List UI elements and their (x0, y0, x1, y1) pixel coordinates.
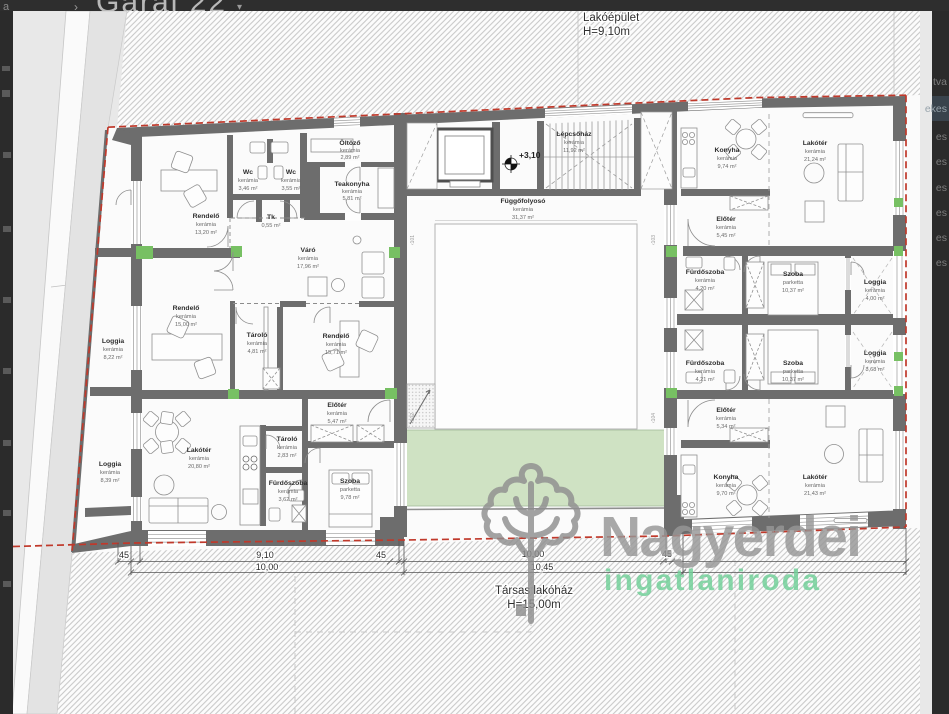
svg-text:3,46 m²: 3,46 m² (239, 186, 258, 192)
svg-text:kerámia: kerámia (298, 256, 319, 262)
svg-text:Függőfolyosó: Függőfolyosó (501, 198, 546, 205)
svg-text:10,37 m²: 10,37 m² (782, 377, 804, 383)
svg-text:Loggia: Loggia (99, 461, 121, 468)
svg-text:kerámia: kerámia (340, 148, 361, 154)
svg-text:10,37 m²: 10,37 m² (782, 288, 804, 294)
svg-text:5,45 m²: 5,45 m² (717, 233, 736, 239)
svg-text:es: es (936, 257, 947, 269)
svg-text:21,24 m²: 21,24 m² (804, 157, 826, 163)
svg-text:Öltöző: Öltöző (339, 138, 360, 147)
svg-text:8,22 m²: 8,22 m² (104, 355, 123, 361)
svg-text:Lakótér: Lakótér (803, 474, 828, 481)
svg-text:tva: tva (933, 76, 947, 88)
svg-text:kerámia: kerámia (716, 416, 737, 422)
svg-text:Szoba: Szoba (783, 360, 803, 367)
svg-text:‹102: ‹102 (410, 413, 416, 423)
svg-text:kerámia: kerámia (327, 411, 348, 417)
svg-text:es: es (936, 207, 947, 219)
svg-text:‹104: ‹104 (651, 413, 657, 423)
svg-text:Tk: Tk (267, 214, 275, 221)
svg-text:9,70 m²: 9,70 m² (717, 491, 736, 497)
svg-text:Lakóépület: Lakóépület (583, 12, 640, 24)
svg-text:4,81 m²: 4,81 m² (248, 349, 267, 355)
svg-text:15,71 m²: 15,71 m² (325, 350, 347, 356)
svg-text:21,43 m²: 21,43 m² (804, 491, 826, 497)
svg-text:ekes: ekes (925, 103, 947, 115)
svg-text:11,92 m²: 11,92 m² (563, 148, 585, 154)
svg-text:Lakótér: Lakótér (803, 140, 828, 147)
svg-text:31,37 m²: 31,37 m² (512, 215, 534, 221)
svg-text:Nagyerdei: Nagyerdei (600, 505, 862, 569)
svg-text:Loggia: Loggia (864, 350, 886, 357)
svg-text:kerámia: kerámia (326, 342, 347, 348)
svg-text:kerámia: kerámia (716, 483, 737, 489)
svg-text:10,00: 10,00 (256, 562, 279, 572)
svg-text:5,81 m²: 5,81 m² (343, 196, 362, 202)
svg-text:Előtér: Előtér (716, 407, 736, 414)
svg-text:2,89 m²: 2,89 m² (341, 155, 360, 161)
svg-text:kerámia: kerámia (277, 445, 298, 451)
svg-text:4,20 m²: 4,20 m² (696, 286, 715, 292)
svg-text:parketta: parketta (783, 369, 804, 375)
svg-text:45: 45 (119, 550, 129, 560)
svg-text:3,68 m²: 3,68 m² (866, 367, 885, 373)
svg-text:20,80 m²: 20,80 m² (188, 464, 210, 470)
svg-text:3,62 m²: 3,62 m² (279, 497, 298, 503)
svg-text:9,74 m²: 9,74 m² (718, 164, 737, 170)
svg-text:Rendelő: Rendelő (173, 305, 200, 312)
svg-text:Váró: Váró (300, 247, 315, 254)
svg-text:9,78 m²: 9,78 m² (341, 495, 360, 501)
svg-text:es: es (936, 131, 947, 143)
svg-text:4,00 m²: 4,00 m² (866, 296, 885, 302)
svg-text:kerámia: kerámia (805, 149, 826, 155)
svg-text:kerámia: kerámia (278, 489, 299, 495)
svg-text:kerámia: kerámia (247, 341, 268, 347)
svg-text:Lépcsőház: Lépcsőház (556, 131, 592, 138)
svg-text:kerámia: kerámia (196, 222, 217, 228)
svg-text:kerámia: kerámia (695, 278, 716, 284)
svg-text:Loggia: Loggia (102, 338, 124, 345)
svg-text:Fürdőszoba: Fürdőszoba (686, 360, 725, 367)
svg-text:kerámia: kerámia (103, 347, 124, 353)
svg-text:45: 45 (376, 550, 386, 560)
svg-text:Fürdőszoba: Fürdőszoba (686, 269, 725, 276)
svg-text:13,20 m²: 13,20 m² (195, 230, 217, 236)
svg-text:kerámia: kerámia (100, 470, 121, 476)
svg-text:Szoba: Szoba (340, 478, 360, 485)
svg-text:kerámia: kerámia (805, 483, 826, 489)
svg-text:15,00 m²: 15,00 m² (175, 322, 197, 328)
svg-text:ingatlaniroda: ingatlaniroda (604, 564, 820, 597)
svg-text:Szoba: Szoba (783, 271, 803, 278)
svg-text:9,10: 9,10 (256, 550, 274, 560)
svg-text:‹101: ‹101 (410, 235, 416, 245)
svg-text:es: es (936, 232, 947, 244)
svg-text:kerámia: kerámia (716, 225, 737, 231)
svg-text:parketta: parketta (340, 487, 361, 493)
svg-text:Loggia: Loggia (864, 279, 886, 286)
svg-text:Konyha: Konyha (714, 474, 739, 481)
svg-text:kerámia: kerámia (865, 359, 886, 365)
svg-text:Társas lakóház: Társas lakóház (495, 585, 573, 597)
svg-text:H=9,10m: H=9,10m (583, 26, 630, 38)
svg-text:Rendelő: Rendelő (323, 333, 350, 340)
svg-text:4,21 m²: 4,21 m² (696, 377, 715, 383)
svg-text:5,47 m²: 5,47 m² (328, 419, 347, 425)
svg-text:kerámia: kerámia (695, 369, 716, 375)
svg-text:17,96 m²: 17,96 m² (297, 264, 319, 270)
svg-text:Tároló: Tároló (277, 436, 298, 443)
svg-text:3,55 m²: 3,55 m² (282, 186, 301, 192)
svg-text:kerámia: kerámia (176, 314, 197, 320)
svg-text:kerámia: kerámia (513, 207, 534, 213)
svg-text:Rendelő: Rendelő (193, 213, 220, 220)
svg-text:parketta: parketta (783, 280, 804, 286)
svg-text:Előtér: Előtér (327, 402, 347, 409)
svg-text:‹103: ‹103 (651, 235, 657, 245)
svg-text:kerámia: kerámia (238, 178, 259, 184)
svg-text:Fürdőszoba: Fürdőszoba (269, 480, 308, 487)
svg-text:Tároló: Tároló (247, 332, 268, 339)
svg-text:Konyha: Konyha (715, 147, 740, 154)
svg-text:kerámia: kerámia (189, 456, 210, 462)
svg-text:8,39 m²: 8,39 m² (101, 478, 120, 484)
svg-text:es: es (936, 182, 947, 194)
svg-text:Lakótér: Lakótér (187, 447, 212, 454)
svg-text:5,34 m²: 5,34 m² (717, 424, 736, 430)
svg-text:0,55 m²: 0,55 m² (262, 223, 281, 229)
svg-text:Wc: Wc (286, 169, 296, 176)
svg-text:Előtér: Előtér (716, 216, 736, 223)
svg-text:kerámia: kerámia (865, 288, 886, 294)
svg-text:10,45: 10,45 (531, 562, 554, 572)
svg-text:2,83 m²: 2,83 m² (278, 453, 297, 459)
svg-text:Teakonyha: Teakonyha (334, 181, 369, 188)
svg-text:kerámia: kerámia (564, 140, 585, 146)
svg-text:kerámia: kerámia (717, 156, 738, 162)
svg-text:kerámia: kerámia (342, 189, 363, 195)
svg-text:es: es (936, 156, 947, 168)
svg-text:kerámia: kerámia (281, 178, 302, 184)
svg-text:Wc: Wc (243, 169, 253, 176)
svg-text:+3,10: +3,10 (519, 150, 541, 160)
